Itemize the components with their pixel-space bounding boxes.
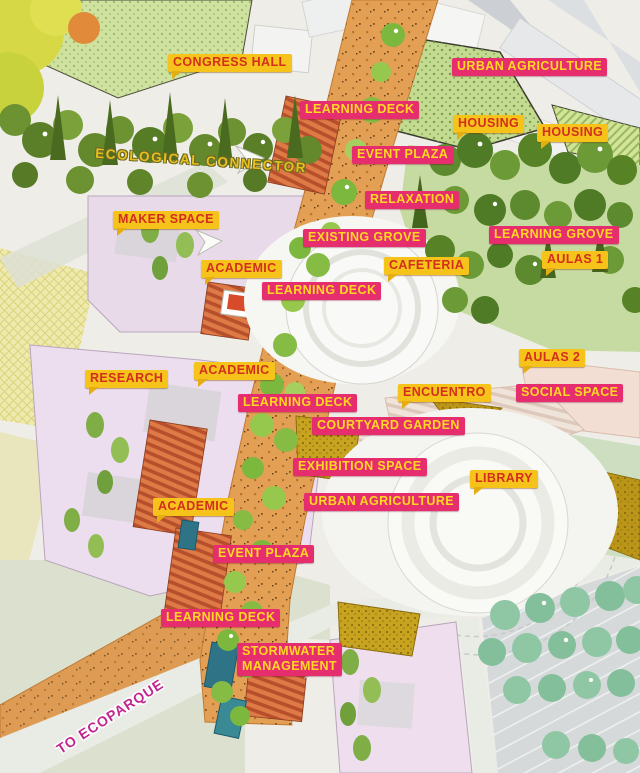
research-label: RESEARCH xyxy=(85,370,168,388)
congress-hall-label: CONGRESS HALL xyxy=(168,54,292,72)
to-ecoparque-label: TO ECOPARQUE xyxy=(54,676,167,758)
housing-1-label: HOUSING xyxy=(453,115,524,133)
urban-agriculture-mid-label: URBAN AGRICULTURE xyxy=(304,493,459,511)
learning-deck-3-label: LEARNING DECK xyxy=(238,394,357,412)
labels-layer: CONGRESS HALLECOLOGICAL CONNECTORURBAN A… xyxy=(0,0,640,773)
maker-space-label: MAKER SPACE xyxy=(113,211,219,229)
relaxation-label: RELAXATION xyxy=(365,191,459,209)
exhibition-space-label: EXHIBITION SPACE xyxy=(293,458,427,476)
housing-2-label: HOUSING xyxy=(537,124,608,142)
academic-3-label: ACADEMIC xyxy=(153,498,234,516)
learning-deck-2-label: LEARNING DECK xyxy=(262,282,381,300)
urban-agriculture-top-label: URBAN AGRICULTURE xyxy=(452,58,607,76)
stormwater-management-label: STORMWATER MANAGEMENT xyxy=(237,643,342,676)
event-plaza-2-label: EVENT PLAZA xyxy=(213,545,314,563)
learning-deck-1-label: LEARNING DECK xyxy=(300,101,419,119)
aulas-1-label: AULAS 1 xyxy=(542,251,608,269)
encuentro-label: ENCUENTRO xyxy=(398,384,491,402)
ecological-connector-label: ECOLOGICAL CONNECTOR xyxy=(95,146,308,177)
aulas-2-label: AULAS 2 xyxy=(519,349,585,367)
event-plaza-1-label: EVENT PLAZA xyxy=(352,146,453,164)
cafeteria-label: CAFETERIA xyxy=(384,257,469,275)
library-label: LIBRARY xyxy=(470,470,538,488)
academic-1-label: ACADEMIC xyxy=(201,260,282,278)
learning-deck-4-label: LEARNING DECK xyxy=(161,609,280,627)
academic-2-label: ACADEMIC xyxy=(194,362,275,380)
masterplan-map: CONGRESS HALLECOLOGICAL CONNECTORURBAN A… xyxy=(0,0,640,773)
existing-grove-label: EXISTING GROVE xyxy=(303,229,426,247)
learning-grove-label: LEARNING GROVE xyxy=(489,226,619,244)
social-space-label: SOCIAL SPACE xyxy=(516,384,623,402)
courtyard-garden-label: COURTYARD GARDEN xyxy=(312,417,465,435)
